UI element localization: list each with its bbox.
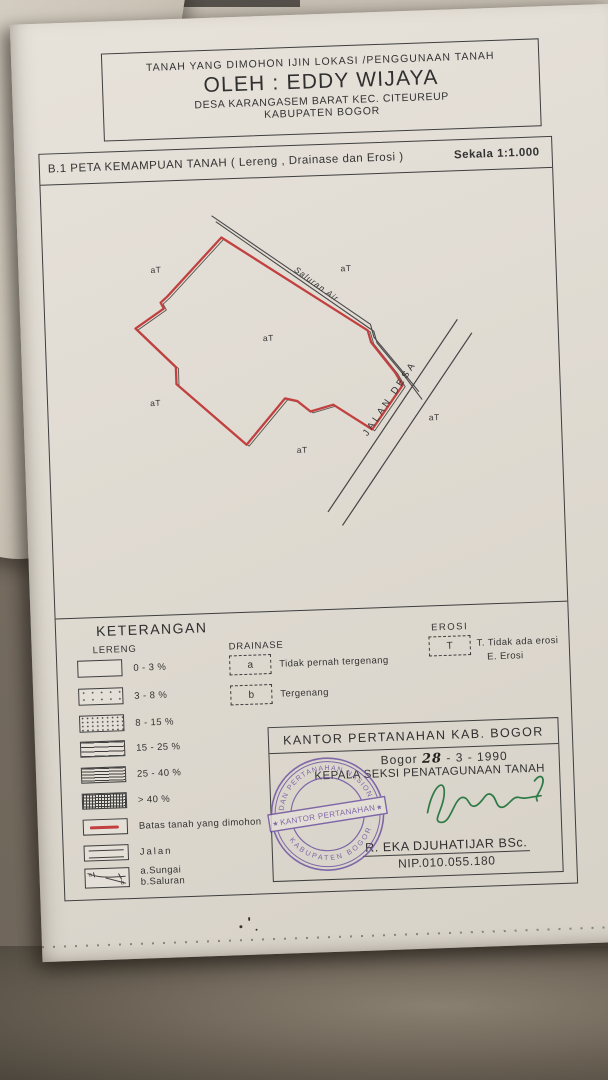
slope-swatch-8-15 [79, 714, 125, 733]
cadastral-map: Saluran Air JALAN DESA aT aT aT aT aT aT [40, 168, 567, 619]
slope-swatch-25-40 [81, 766, 127, 784]
soil-unit-label: aT [297, 445, 308, 455]
svg-text:KABUPATEN BOGOR: KABUPATEN BOGOR [287, 823, 378, 868]
slope-legend-title: LERENG [93, 644, 137, 657]
channel-lines [212, 209, 423, 407]
photographed-document: TANAH YANG DIMOHON IJIN LOKASI /PENGGUNA… [0, 0, 608, 1080]
slope-label-gt40: > 40 % [138, 794, 171, 806]
boundary-swatch [83, 818, 129, 836]
slope-swatch-15-25 [80, 740, 126, 758]
slope-label-0-3: 0 - 3 % [133, 662, 166, 674]
road-label: JALAN DESA [361, 359, 419, 438]
ink-speck [256, 929, 258, 931]
star-icon: ★ [272, 819, 279, 828]
slope-label-3-8: 3 - 8 % [134, 690, 167, 702]
soil-unit-label: aT [340, 263, 351, 273]
map-title: B.1 PETA KEMAMPUAN TANAH ( Lereng , Drai… [48, 151, 404, 175]
office-stamp: BADAN PERTANAHAN NASIONAL KABUPATEN BOGO… [259, 746, 396, 883]
document-paper: TANAH YANG DIMOHON IJIN LOKASI /PENGGUNA… [10, 4, 608, 962]
soil-unit-labels: aT aT aT aT aT aT [145, 255, 441, 460]
river-icon: a b [85, 868, 128, 886]
soil-unit-label: aT [150, 265, 161, 275]
soil-unit-label: aT [263, 333, 274, 343]
ink-speck [248, 917, 250, 921]
slope-swatch-gt40 [82, 792, 128, 810]
soil-unit-label: aT [150, 398, 161, 408]
signature [418, 766, 560, 835]
erosion-symbol: T [428, 635, 471, 656]
erosion-legend-title: EROSI [431, 621, 468, 633]
soil-unit-label: aT [429, 412, 440, 422]
road-swatch [84, 844, 130, 862]
erosion-label-2: E. Erosi [487, 650, 524, 662]
legend-section: KETERANGAN LERENG 0 - 3 % 3 - 8 % 8 - 15… [56, 601, 578, 901]
map-scale: Sekala 1:1.000 [454, 146, 540, 161]
handwritten-day: 28 [422, 751, 443, 767]
land-office-box: KANTOR PERTANAHAN KAB. BOGOR Bogor 28 - … [267, 717, 563, 882]
drainage-symbol-b: b [230, 684, 273, 705]
boundary-label: Batas tanah yang dimohon [139, 816, 262, 831]
road-legend-label: Jalan [140, 846, 173, 858]
drainage-symbol-a: a [229, 654, 272, 675]
village-road-lines [321, 319, 478, 526]
table-surface [0, 946, 608, 1080]
ink-speck [239, 925, 242, 928]
title-block: TANAH YANG DIMOHON IJIN LOKASI /PENGGUNA… [101, 38, 542, 141]
document-frame: B.1 PETA KEMAMPUAN TANAH ( Lereng , Drai… [38, 136, 578, 901]
stamp-bottom-text: KABUPATEN BOGOR [287, 823, 378, 868]
slope-swatch-0-3 [77, 659, 123, 678]
drainage-label-a: Tidak pernah tergenang [279, 655, 389, 670]
paper-fold-marks [42, 925, 608, 948]
slope-label-8-15: 8 - 15 % [135, 716, 174, 728]
drainage-legend-title: DRAINASE [228, 640, 283, 653]
slope-label-15-25: 15 - 25 % [136, 741, 181, 754]
map-area: Saluran Air JALAN DESA aT aT aT aT aT aT [40, 168, 567, 619]
river-label-b: b.Saluran [141, 875, 186, 888]
star-icon: ★ [376, 803, 383, 812]
river-swatch: a b [84, 867, 130, 889]
city: Bogor [380, 752, 417, 767]
erosion-label-1: T. Tidak ada erosi [476, 635, 558, 649]
slope-label-25-40: 25 - 40 % [137, 767, 182, 780]
date-rest: - 3 - 1990 [446, 749, 508, 765]
slope-swatch-3-8 [78, 687, 124, 706]
drainage-label-b: Tergenang [280, 687, 329, 700]
legend-heading: KETERANGAN [96, 619, 208, 639]
